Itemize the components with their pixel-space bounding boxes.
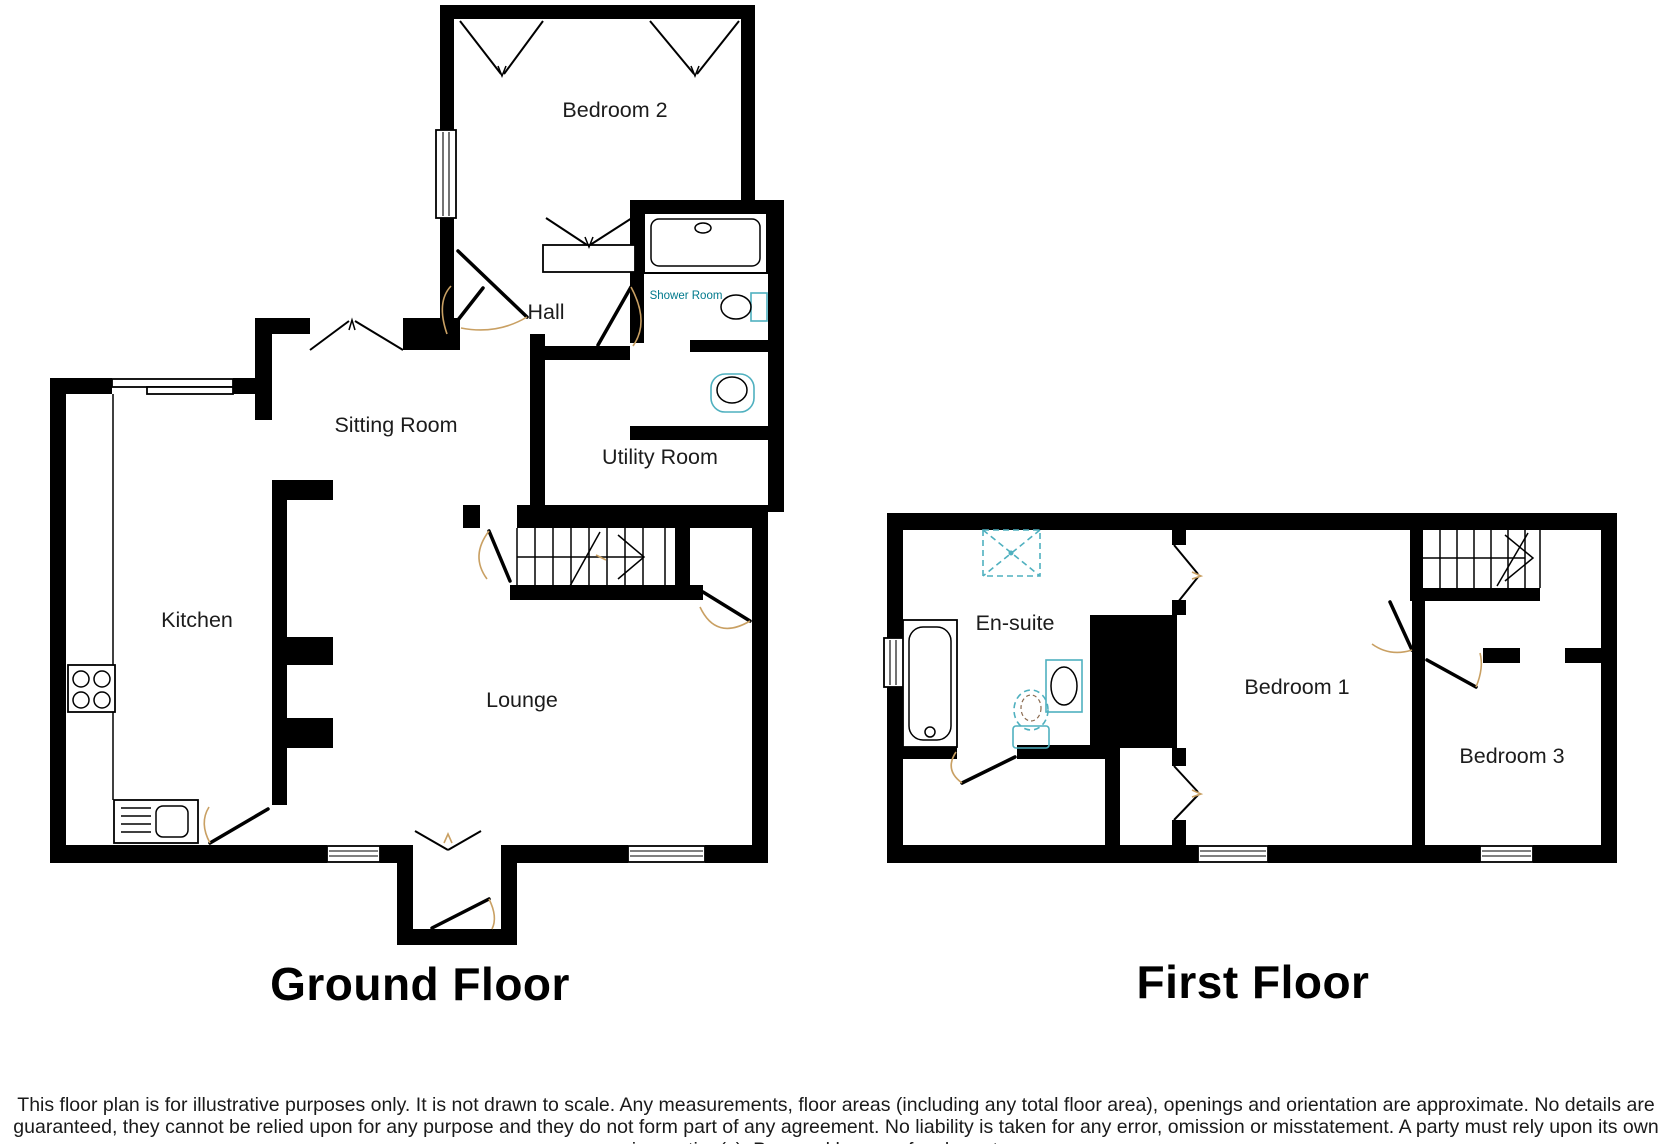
door-bedroom2: [458, 251, 527, 330]
disclaimer-text: This floor plan is for illustrative purp…: [0, 1094, 1672, 1144]
ground-floor-plan: Bedroom 2 Hall Shower Room Sitting Room …: [50, 5, 784, 1010]
title-first-floor: First Floor: [1137, 956, 1370, 1008]
room-label-kitchen: Kitchen: [161, 608, 233, 632]
door-ensuite: [951, 752, 1015, 783]
basin-icon: [1046, 660, 1082, 712]
window: [884, 638, 904, 687]
door-bedroom1: [1372, 602, 1412, 652]
toilet-icon: [711, 374, 754, 412]
door-lounge: [700, 592, 750, 628]
room-label-shower-room: Shower Room: [650, 290, 723, 302]
shower-tray-icon: [644, 212, 767, 273]
room-label-utility-room: Utility Room: [602, 445, 718, 469]
toilet-icon: [1013, 690, 1049, 748]
floorplan-page: Bedroom 2 Hall Shower Room Sitting Room …: [0, 0, 1672, 1144]
sink-icon: [114, 800, 198, 843]
room-label-lounge: Lounge: [486, 688, 558, 712]
bay-window-icon: [310, 320, 403, 350]
door-porch: [432, 899, 494, 929]
title-ground-floor: Ground Floor: [270, 958, 570, 1010]
bath-icon: [903, 620, 957, 747]
room-label-bedroom1: Bedroom 1: [1244, 675, 1349, 699]
first-floor-windows: [884, 638, 1533, 862]
window: [327, 846, 380, 862]
casement-window-icon: [460, 21, 543, 76]
window: [1480, 846, 1533, 862]
floorplan-drawing: Bedroom 2 Hall Shower Room Sitting Room …: [0, 0, 1672, 1144]
room-label-bedroom2: Bedroom 2: [562, 98, 667, 122]
wardrobe-icon: [543, 218, 635, 272]
first-floor-plan: En-suite Bedroom 1 Bedroom 3 First Floor: [884, 513, 1617, 1008]
door-stairs: [479, 531, 510, 581]
casement-window-icon: [650, 21, 739, 76]
window: [436, 130, 456, 218]
chimney-breast: [1090, 615, 1177, 748]
window: [112, 379, 233, 394]
door-kitchen: [204, 807, 268, 843]
door-bedroom3: [1427, 653, 1481, 687]
room-label-ensuite: En-suite: [976, 611, 1055, 635]
room-label-bedroom3: Bedroom 3: [1459, 744, 1564, 768]
bifold-door-icon: [1174, 766, 1201, 820]
staircase-first: [1423, 528, 1540, 588]
french-door-icon: [415, 831, 481, 850]
window: [628, 846, 705, 862]
room-label-sitting-room: Sitting Room: [334, 413, 457, 437]
staircase-ground: [517, 528, 665, 586]
room-label-hall: Hall: [527, 300, 564, 324]
skylight-icon: [983, 530, 1040, 576]
window: [1198, 846, 1268, 862]
basin-icon: [721, 293, 767, 321]
hob-icon: [68, 665, 115, 712]
ground-floor-windows: [112, 130, 705, 862]
bifold-door-icon: [1174, 545, 1201, 607]
